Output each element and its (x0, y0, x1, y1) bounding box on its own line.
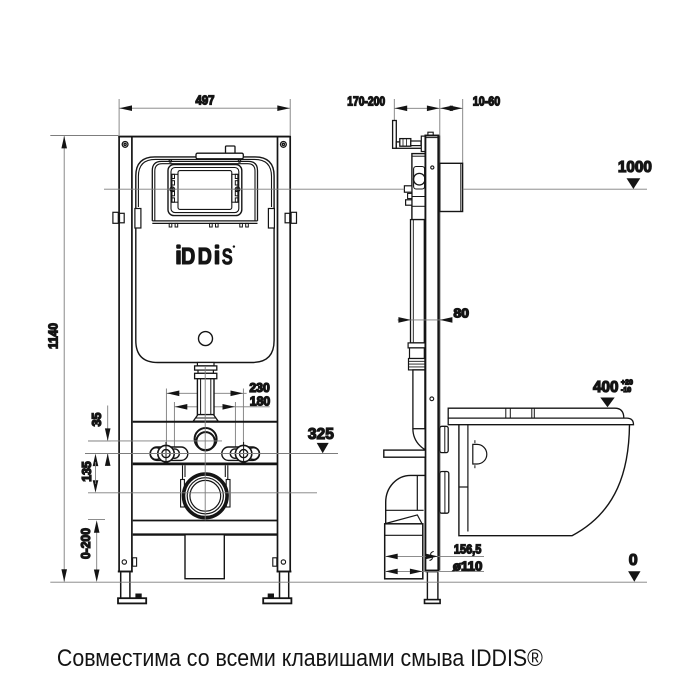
svg-text:0-200: 0-200 (79, 528, 93, 559)
svg-text:35: 35 (90, 412, 104, 426)
svg-text:1000: 1000 (618, 159, 652, 176)
svg-text:180: 180 (250, 395, 271, 409)
svg-text:1140: 1140 (47, 323, 61, 349)
svg-text:156,5: 156,5 (454, 543, 482, 557)
svg-text:400: 400 (593, 379, 619, 396)
svg-text:230: 230 (249, 381, 270, 395)
svg-text:80: 80 (454, 306, 470, 320)
svg-text:ø110: ø110 (453, 559, 483, 573)
svg-text:170-200: 170-200 (347, 94, 385, 108)
svg-text:135: 135 (80, 461, 94, 482)
svg-text:Совместима со всеми клавишами: Совместима со всеми клавишами смыва IDDI… (57, 645, 543, 672)
svg-text:+20: +20 (621, 380, 633, 387)
svg-text:0: 0 (629, 552, 638, 569)
svg-text:10-60: 10-60 (473, 94, 501, 108)
svg-text:325: 325 (308, 426, 334, 443)
svg-text:S: S (222, 244, 233, 270)
svg-text:-10: -10 (621, 387, 631, 394)
svg-text:497: 497 (196, 94, 215, 108)
